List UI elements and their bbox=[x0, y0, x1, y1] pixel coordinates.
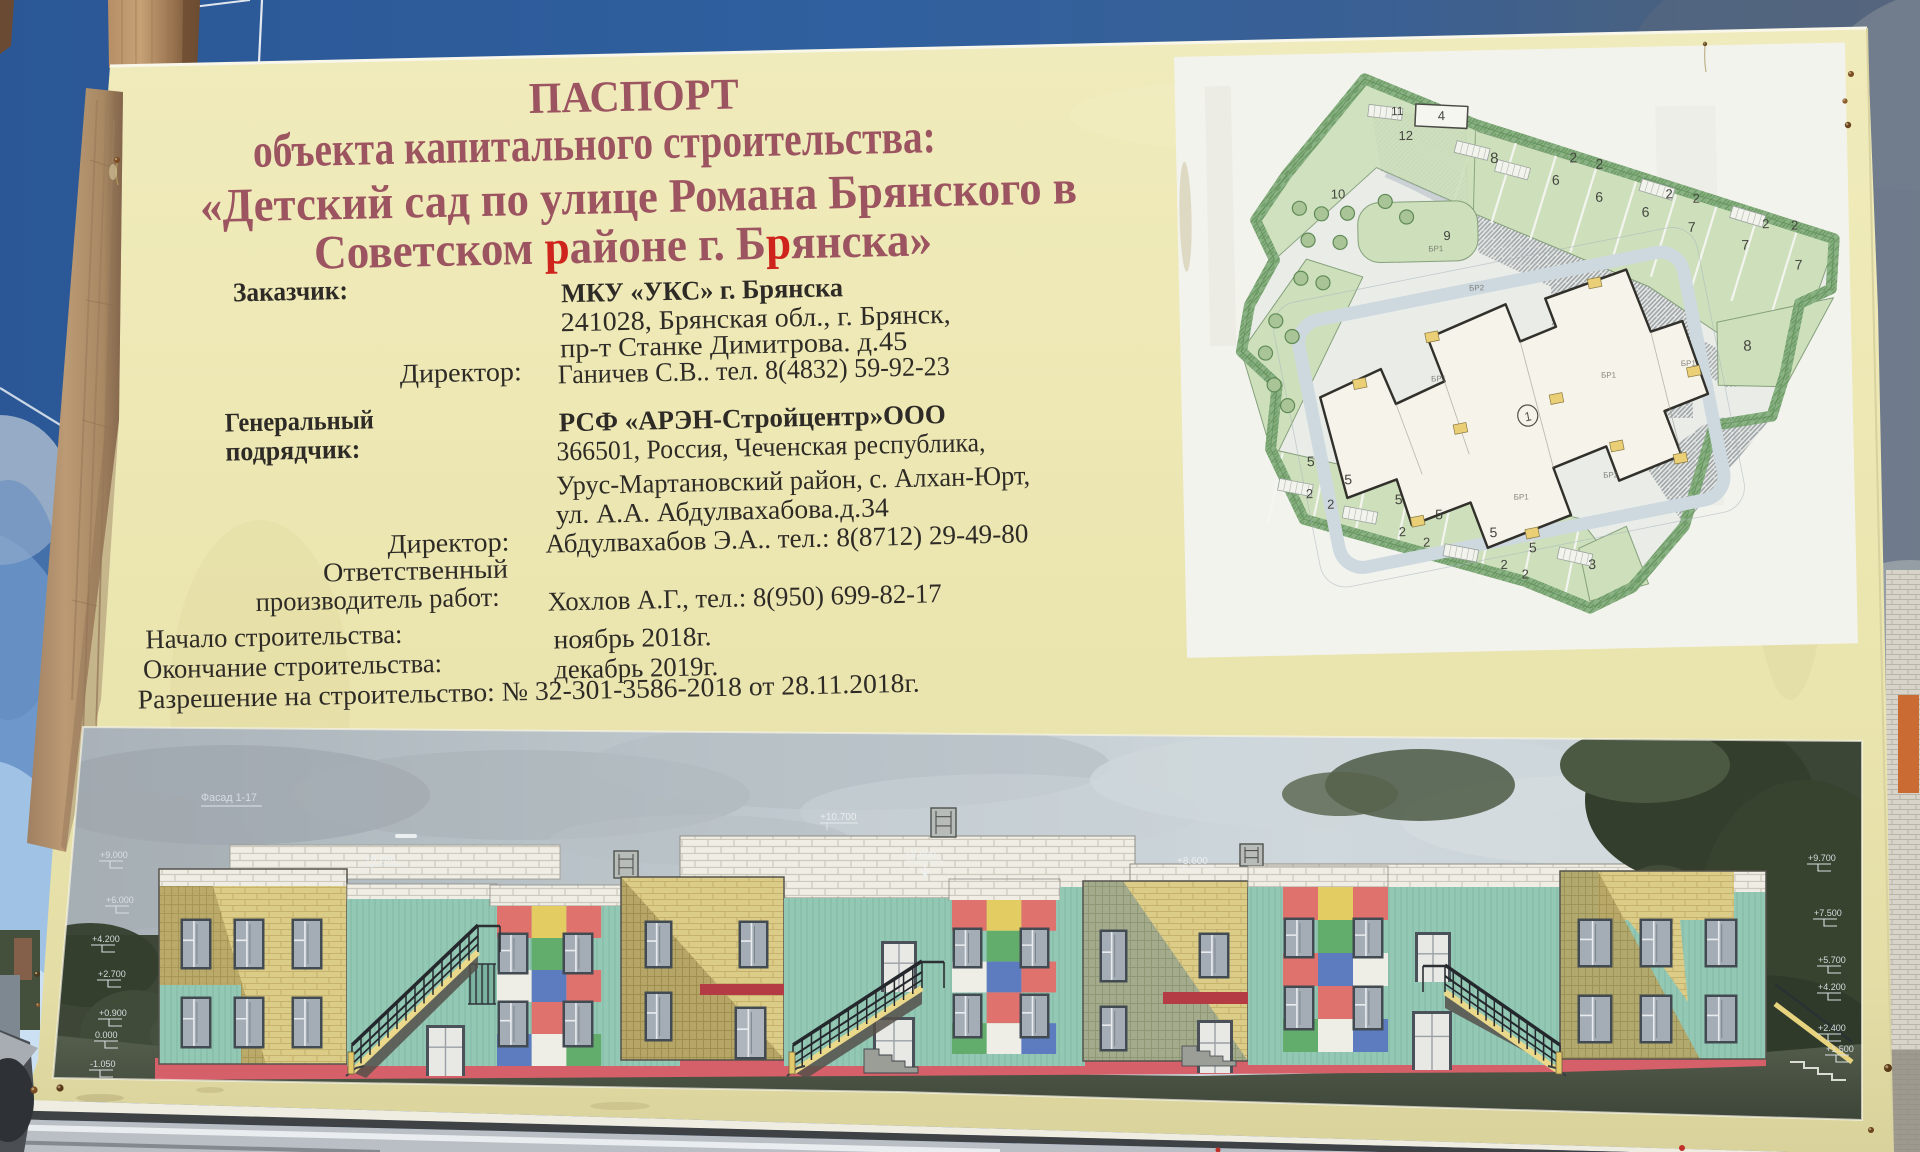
svg-text:3: 3 bbox=[1588, 556, 1596, 572]
svg-text:5: 5 bbox=[1395, 491, 1403, 507]
svg-text:2: 2 bbox=[1423, 535, 1431, 550]
svg-text:6: 6 bbox=[1641, 204, 1649, 220]
svg-text:+4.200: +4.200 bbox=[92, 934, 120, 944]
svg-text:2: 2 bbox=[1692, 191, 1700, 206]
svg-text:Заказчик:: Заказчик: bbox=[233, 275, 349, 307]
svg-text:+9.000: +9.000 bbox=[100, 850, 128, 860]
svg-text:БР1: БР1 bbox=[1431, 374, 1447, 383]
svg-text:2: 2 bbox=[1762, 216, 1770, 231]
svg-text:4: 4 bbox=[1438, 108, 1446, 123]
svg-text:БР2: БР2 bbox=[1469, 283, 1485, 292]
svg-text:2: 2 bbox=[1399, 524, 1407, 539]
svg-text:5: 5 bbox=[1529, 539, 1537, 555]
svg-text:БР1: БР1 bbox=[1601, 370, 1617, 379]
svg-text:Генеральный: Генеральный bbox=[224, 404, 374, 437]
svg-text:2: 2 bbox=[1569, 149, 1577, 165]
svg-text:2: 2 bbox=[1306, 486, 1314, 501]
svg-text:БР1: БР1 bbox=[1428, 244, 1444, 253]
svg-text:+1.500: +1.500 bbox=[1826, 1044, 1854, 1054]
svg-text:5: 5 bbox=[1489, 524, 1497, 540]
svg-text:8: 8 bbox=[1490, 150, 1499, 167]
svg-text:5: 5 bbox=[1435, 506, 1443, 522]
svg-text:Фасад 1-17: Фасад 1-17 bbox=[201, 792, 257, 804]
svg-text:+2.700: +2.700 bbox=[98, 969, 126, 979]
svg-text:2: 2 bbox=[1500, 557, 1508, 572]
svg-text:9: 9 bbox=[1443, 228, 1451, 243]
svg-text:+0.900: +0.900 bbox=[99, 1008, 127, 1018]
svg-text:12: 12 bbox=[1398, 128, 1413, 143]
svg-text:5: 5 bbox=[1344, 471, 1352, 487]
svg-text:2: 2 bbox=[1595, 156, 1603, 172]
svg-text:+8.800: +8.800 bbox=[905, 850, 936, 861]
svg-text:7: 7 bbox=[1795, 256, 1803, 272]
svg-text:подрядчик:: подрядчик: bbox=[225, 434, 361, 467]
svg-text:6: 6 bbox=[1595, 189, 1603, 205]
svg-text:2: 2 bbox=[1791, 218, 1799, 233]
svg-text:+8.200: +8.200 bbox=[365, 854, 396, 865]
svg-text:+8.600: +8.600 bbox=[1177, 856, 1208, 867]
svg-text:+2.400: +2.400 bbox=[1818, 1023, 1846, 1033]
svg-text:Директор:: Директор: bbox=[399, 356, 522, 389]
svg-text:+6.000: +6.000 bbox=[106, 895, 134, 905]
svg-text:+9.700: +9.700 bbox=[1808, 853, 1836, 863]
svg-text:7: 7 bbox=[1741, 237, 1749, 253]
svg-text:5: 5 bbox=[1307, 453, 1315, 469]
svg-text:2: 2 bbox=[1522, 566, 1530, 581]
svg-text:2: 2 bbox=[1327, 497, 1335, 512]
svg-text:6: 6 bbox=[1552, 172, 1560, 188]
svg-text:7: 7 bbox=[1688, 219, 1696, 235]
svg-text:2: 2 bbox=[1665, 186, 1673, 201]
svg-text:+7.500: +7.500 bbox=[1814, 908, 1842, 918]
svg-text:+10.700: +10.700 bbox=[820, 812, 857, 823]
svg-text:БР2: БР2 bbox=[1603, 470, 1619, 479]
svg-text:8: 8 bbox=[1743, 338, 1752, 355]
svg-text:11: 11 bbox=[1391, 104, 1404, 118]
svg-text:-1.050: -1.050 bbox=[90, 1059, 116, 1069]
svg-text:10: 10 bbox=[1331, 186, 1346, 201]
svg-text:0.000: 0.000 bbox=[95, 1030, 118, 1040]
svg-text:+5.700: +5.700 bbox=[1818, 955, 1846, 965]
svg-text:производитель работ:: производитель работ: bbox=[255, 582, 500, 617]
svg-text:ноябрь 2018г.: ноябрь 2018г. bbox=[553, 621, 712, 654]
svg-text:БР1: БР1 bbox=[1681, 359, 1697, 368]
svg-text:+4.200: +4.200 bbox=[1818, 982, 1846, 992]
svg-text:БР1: БР1 bbox=[1514, 492, 1530, 501]
